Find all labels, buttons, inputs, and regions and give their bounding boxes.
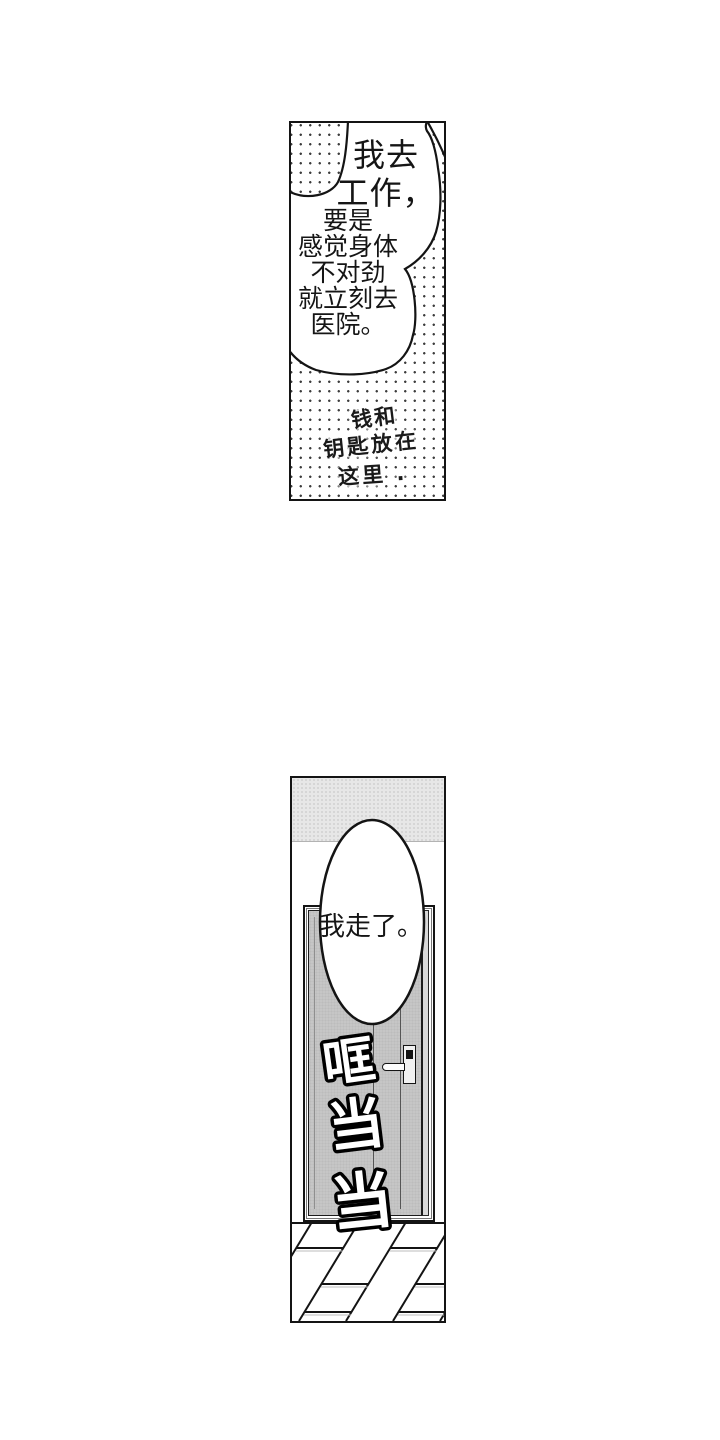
speech-line: 我去 [333, 136, 439, 174]
bottom-panel-overlay: 哐 当 当 [292, 778, 444, 1321]
handwritten-note-line: 这里 . [337, 457, 408, 492]
sfx-character: 哐 [319, 1030, 379, 1097]
panel-top: 我去 工作， 要是 感觉身体 不对劲 就立刻去 医院。 钱和 钥匙放在 这里 . [289, 121, 446, 501]
speech-text-leaving: 我走了。 [317, 906, 425, 943]
panel-bottom: 哐 当 当 我走了。 [290, 776, 446, 1323]
sfx-character: 当 [327, 1162, 396, 1241]
speech-line: 医院。 [291, 312, 405, 338]
speech-text-left: 要是 感觉身体 不对劲 就立刻去 医院。 [291, 208, 405, 338]
speech-line: 要是 [291, 208, 405, 234]
sfx-character: 当 [324, 1090, 388, 1161]
speech-text-right: 我去 工作， [333, 136, 439, 212]
speech-line: 不对劲 [291, 260, 405, 286]
speech-line: 就立刻去 [291, 286, 405, 312]
speech-line: 感觉身体 [291, 234, 405, 260]
